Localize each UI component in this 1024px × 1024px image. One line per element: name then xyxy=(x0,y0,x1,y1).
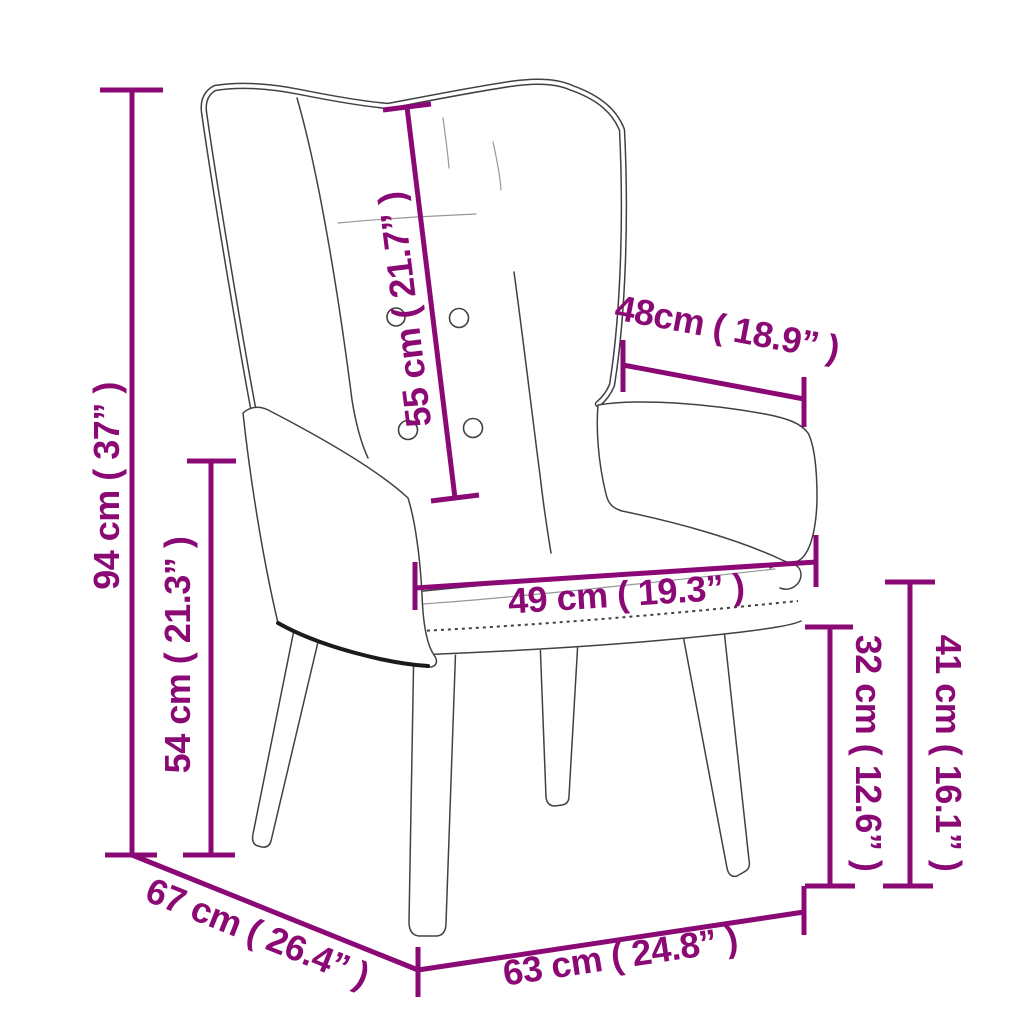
dimension-leg-height: 32 cm ( 12.6” ) xyxy=(805,627,889,886)
chair-leg-back-right xyxy=(540,640,578,806)
chair-leg-front-right xyxy=(682,630,749,876)
dimension-armrest-height: 54 cm ( 21.3” ) xyxy=(157,461,236,855)
dimension-depth: 67 cm ( 26.4” ) xyxy=(132,855,418,996)
dimension-seat-height: 41 cm ( 16.1” ) xyxy=(883,582,969,886)
chair-leg-front-left xyxy=(409,640,456,936)
chair-right-armrest xyxy=(597,402,817,562)
chair-drawing xyxy=(204,82,817,936)
dimension-base-width-label: 63 cm ( 24.8” ) xyxy=(500,918,740,994)
dimension-seat-height-label: 41 cm ( 16.1” ) xyxy=(928,635,969,872)
dimension-base-width: 63 cm ( 24.8” ) xyxy=(418,886,804,997)
dimension-armrest-length-label: 48cm ( 18.9” ) xyxy=(612,287,843,369)
dimension-total-height-label: 94 cm ( 37” ) xyxy=(86,382,127,590)
dimension-diagram: 94 cm ( 37” ) 54 cm ( 21.3” ) 55 cm ( 21… xyxy=(0,0,1024,1024)
dimension-armrest-height-label: 54 cm ( 21.3” ) xyxy=(157,537,198,774)
dimension-leg-height-label: 32 cm ( 12.6” ) xyxy=(848,635,889,872)
tufting-button xyxy=(464,419,483,438)
dimension-depth-label: 67 cm ( 26.4” ) xyxy=(140,869,375,995)
tufting-button xyxy=(450,309,469,328)
dimension-total-height: 94 cm ( 37” ) xyxy=(86,90,163,855)
chair-leg-back-left xyxy=(253,610,322,847)
chair-dimension-svg: 94 cm ( 37” ) 54 cm ( 21.3” ) 55 cm ( 21… xyxy=(0,0,1024,1024)
